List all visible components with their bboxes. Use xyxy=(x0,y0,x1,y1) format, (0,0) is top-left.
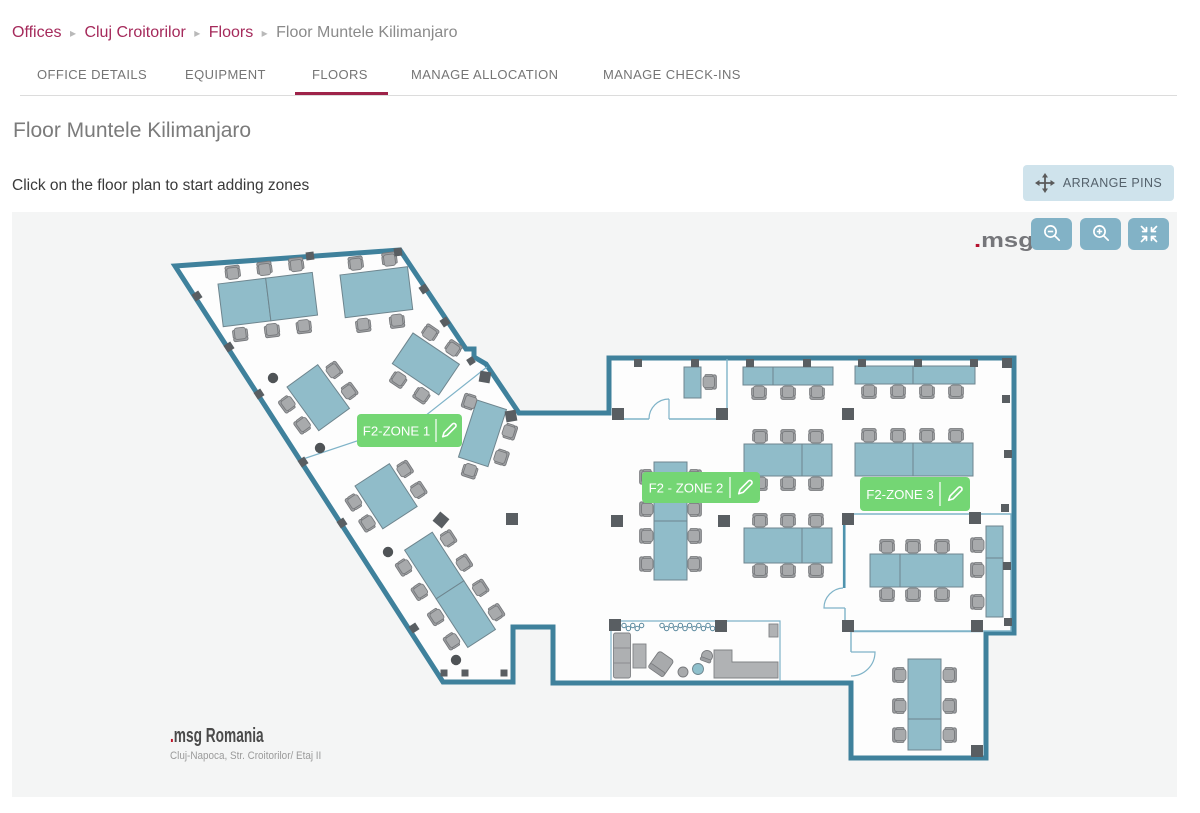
svg-text:F2-ZONE 3: F2-ZONE 3 xyxy=(866,487,933,502)
svg-text:F2-ZONE 1: F2-ZONE 1 xyxy=(363,424,430,439)
svg-text:F2 - ZONE 2: F2 - ZONE 2 xyxy=(649,481,724,496)
